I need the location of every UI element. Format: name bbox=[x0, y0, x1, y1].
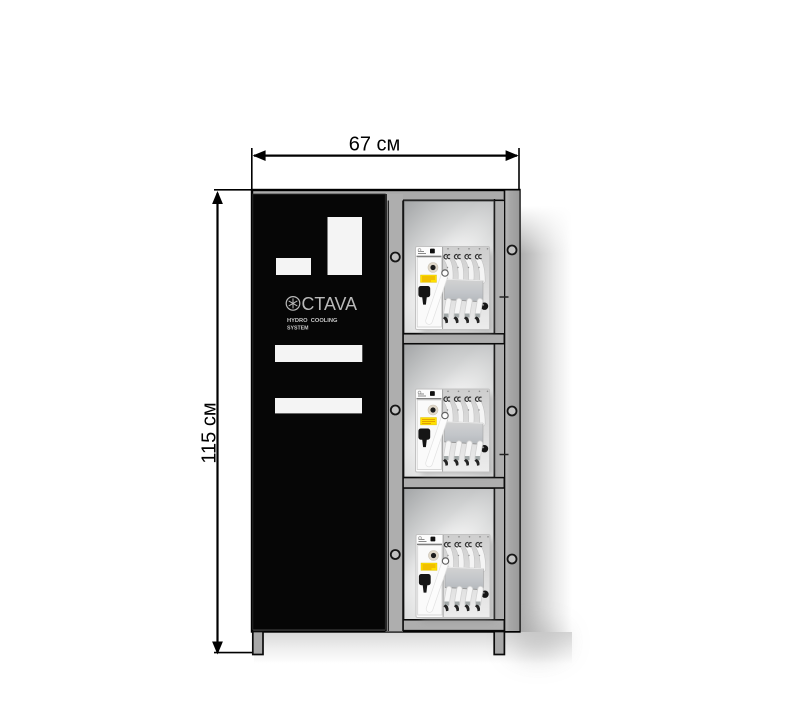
svg-text:CTAVA: CTAVA bbox=[302, 293, 358, 314]
svg-text:SYSTEM: SYSTEM bbox=[287, 326, 309, 332]
svg-text:67 см: 67 см bbox=[349, 134, 401, 156]
svg-text:115 см: 115 см bbox=[198, 402, 220, 463]
svg-text:HYDRO COOLING: HYDRO COOLING bbox=[287, 318, 338, 324]
